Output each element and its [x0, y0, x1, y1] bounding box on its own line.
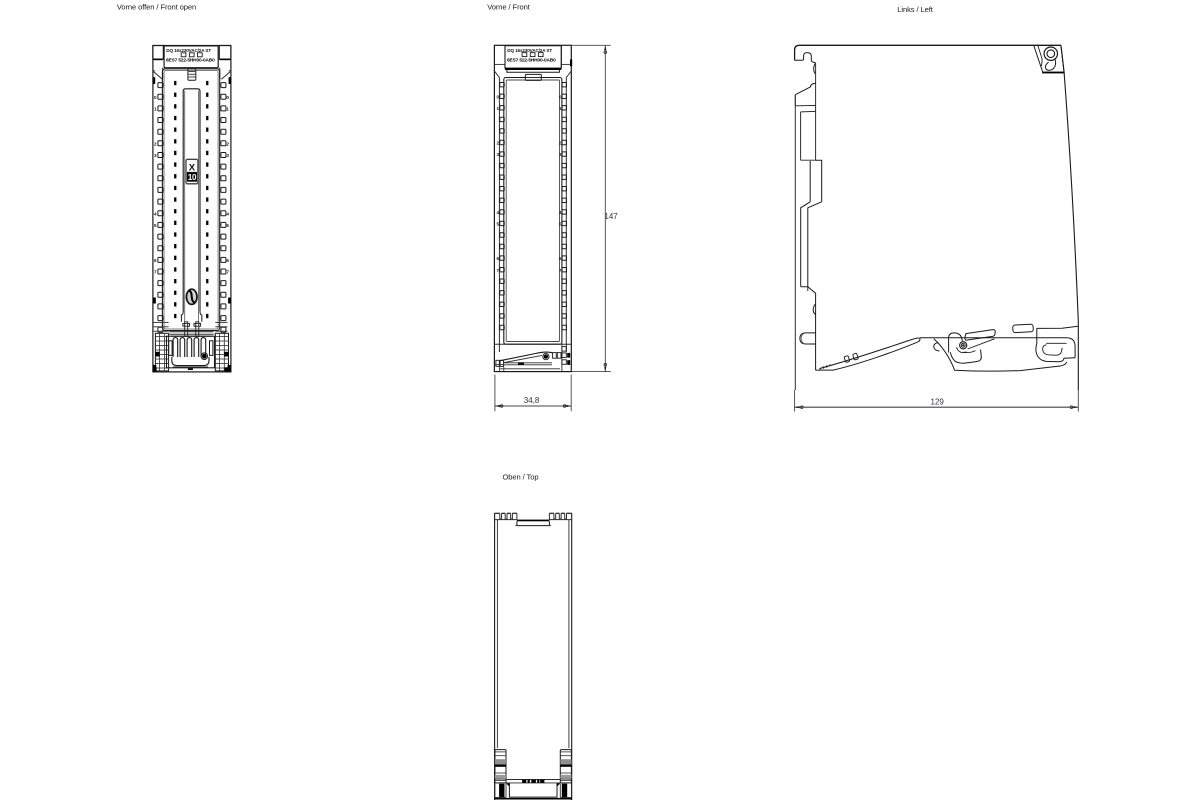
svg-text:2: 2 — [226, 141, 229, 146]
svg-text:4: 4 — [226, 211, 229, 216]
svg-text:4: 4 — [154, 211, 157, 216]
svg-text:7: 7 — [226, 270, 229, 275]
svg-text:6ES7 522-5HH00-0AB0: 6ES7 522-5HH00-0AB0 — [166, 58, 215, 64]
svg-text:1: 1 — [226, 107, 229, 112]
svg-text:6: 6 — [154, 258, 157, 263]
svg-text:7: 7 — [154, 270, 157, 275]
svg-text:129: 129 — [931, 398, 945, 407]
svg-text:34,8: 34,8 — [524, 396, 540, 405]
svg-text:X: X — [189, 163, 196, 174]
svg-text:0: 0 — [154, 95, 157, 100]
svg-text:5: 5 — [226, 223, 229, 228]
svg-text:147: 147 — [604, 212, 618, 221]
svg-text:Vorne / Front: Vorne / Front — [487, 2, 531, 11]
svg-text:2: 2 — [154, 141, 157, 146]
svg-text:DQ 16x230VAC/2A ST: DQ 16x230VAC/2A ST — [507, 48, 552, 53]
svg-text:0: 0 — [226, 95, 229, 100]
svg-text:1: 1 — [154, 107, 157, 112]
svg-text:6: 6 — [226, 258, 229, 263]
svg-text:Links / Left: Links / Left — [897, 5, 934, 14]
svg-text:10: 10 — [188, 173, 197, 182]
svg-text:5: 5 — [154, 223, 157, 228]
svg-text:3: 3 — [154, 153, 157, 158]
svg-text:3: 3 — [226, 153, 229, 158]
svg-text:6ES7 522-5HH00-0AB0: 6ES7 522-5HH00-0AB0 — [507, 57, 556, 63]
svg-text:Vorne offen / Front open: Vorne offen / Front open — [117, 2, 196, 11]
svg-text:DQ 16x230VAC/2A ST: DQ 16x230VAC/2A ST — [166, 48, 211, 53]
svg-text:Oben / Top: Oben / Top — [502, 473, 538, 482]
